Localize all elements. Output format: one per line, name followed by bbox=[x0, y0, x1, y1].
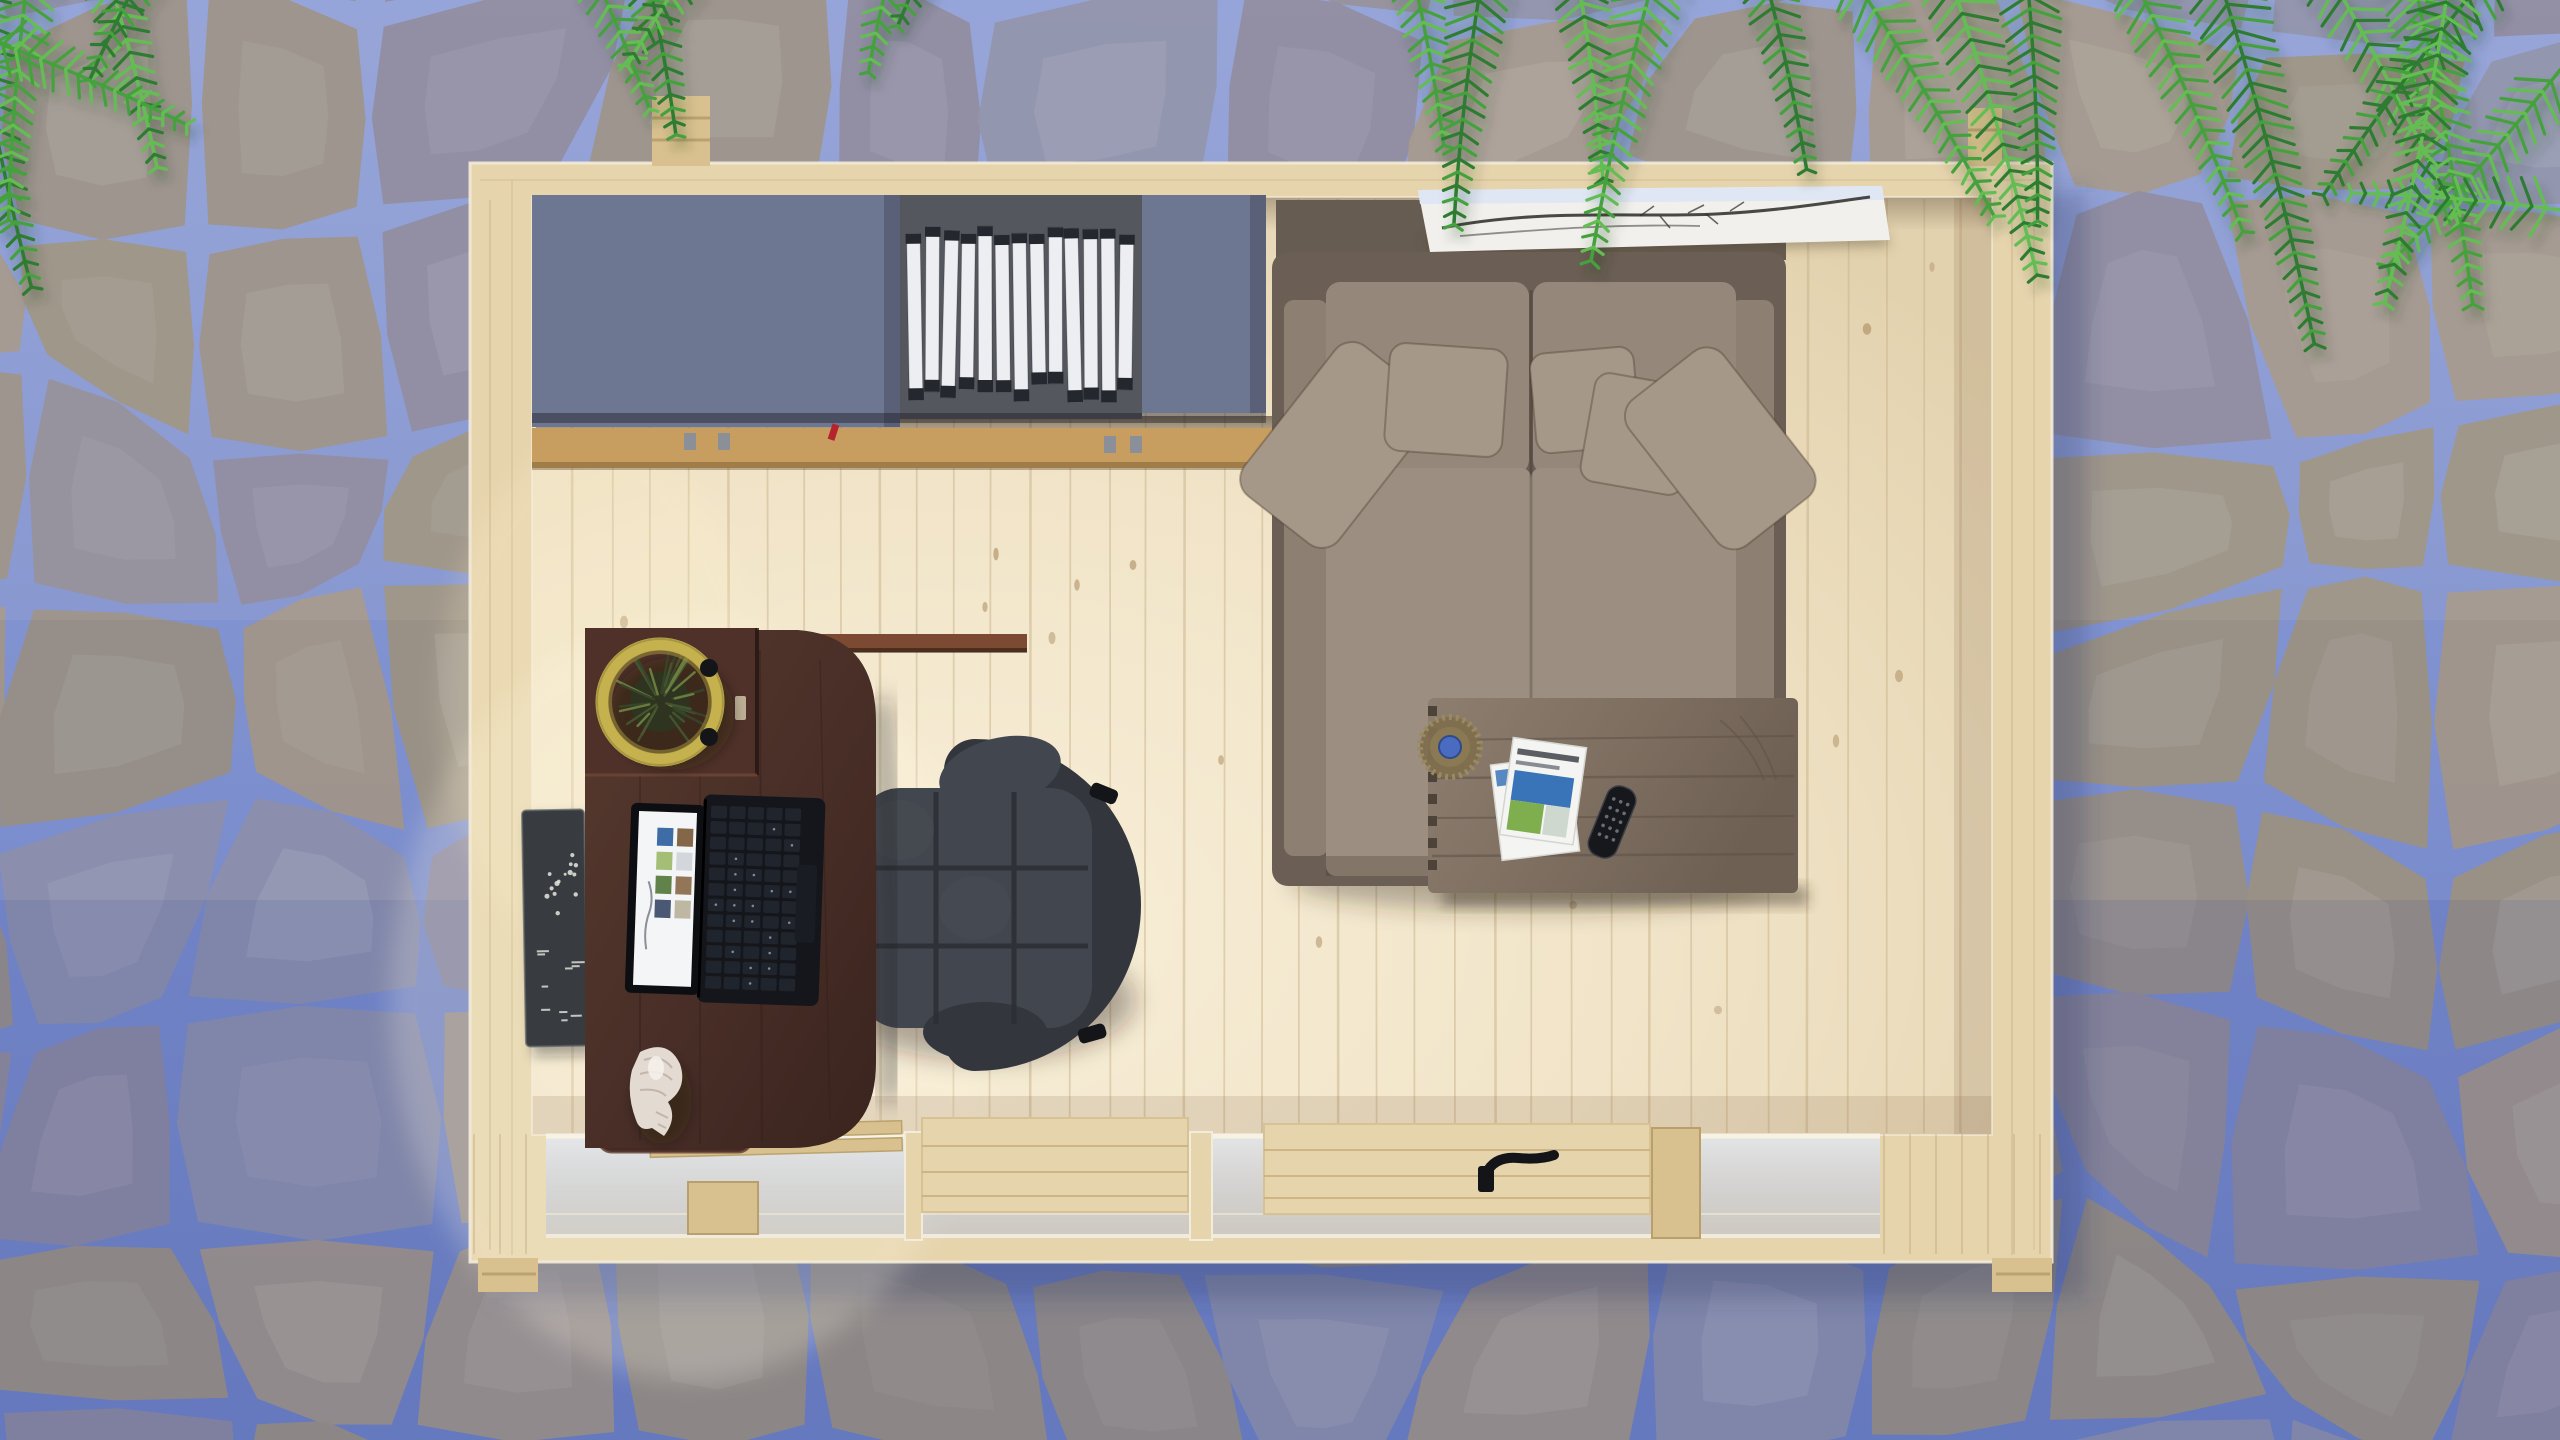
laptop-touchpad bbox=[795, 865, 818, 944]
right-wall-inner-shadow bbox=[1954, 197, 1992, 1135]
drawer-handle bbox=[1130, 436, 1142, 453]
pot-handle-knob bbox=[700, 728, 718, 746]
glazed-door-right-leaf bbox=[1264, 1124, 1650, 1214]
book bbox=[1011, 233, 1029, 401]
drawer-handle bbox=[718, 433, 730, 450]
wood-rosette bbox=[1420, 717, 1480, 777]
book bbox=[1083, 229, 1099, 399]
scene-canvas: Bird's-eye cutaway view of a small log-c… bbox=[0, 0, 2560, 1440]
shell-highlight bbox=[648, 1056, 664, 1080]
log-end-top-left bbox=[652, 96, 710, 166]
chair-bottom-cushion bbox=[923, 1002, 1047, 1062]
cabin-top-view-render bbox=[0, 0, 2560, 1440]
blue-center bbox=[1439, 736, 1461, 758]
leaning-canvas-art bbox=[1418, 186, 1890, 254]
coffee-table bbox=[1420, 698, 1808, 906]
chalkboard-panel bbox=[522, 809, 588, 1046]
magazine-top bbox=[1500, 737, 1587, 844]
book bbox=[1100, 229, 1117, 403]
counter-front bbox=[532, 423, 1282, 470]
glazed-door-left-leaf bbox=[922, 1118, 1188, 1212]
desk-keyhole bbox=[735, 696, 746, 720]
book bbox=[1117, 235, 1135, 390]
cabinet-divider bbox=[884, 195, 900, 427]
sofa-pillow bbox=[1383, 342, 1508, 458]
book bbox=[959, 234, 977, 390]
pot-handle-knob bbox=[700, 659, 718, 677]
window-sill-block bbox=[688, 1182, 758, 1234]
desk-shadow bbox=[880, 700, 892, 1100]
book bbox=[1048, 227, 1064, 384]
drawer-handle bbox=[684, 433, 696, 450]
cabinet-right bbox=[1142, 195, 1266, 413]
book bbox=[977, 226, 993, 392]
counter-edge-shade bbox=[532, 462, 1282, 470]
window-right-glass bbox=[1700, 1138, 1880, 1238]
mullion-3 bbox=[1652, 1128, 1700, 1238]
mullion-1 bbox=[905, 1132, 922, 1240]
cabinet-front-shadowline bbox=[532, 413, 1266, 423]
laptop bbox=[624, 792, 825, 1007]
cabinet-left bbox=[532, 195, 900, 427]
cabinet-right-edge bbox=[1250, 195, 1266, 413]
book bbox=[994, 235, 1011, 392]
book bbox=[924, 227, 940, 392]
drawer-handle bbox=[1104, 436, 1116, 453]
mullion-2 bbox=[1190, 1132, 1212, 1240]
wall-cabinets bbox=[532, 195, 1266, 427]
